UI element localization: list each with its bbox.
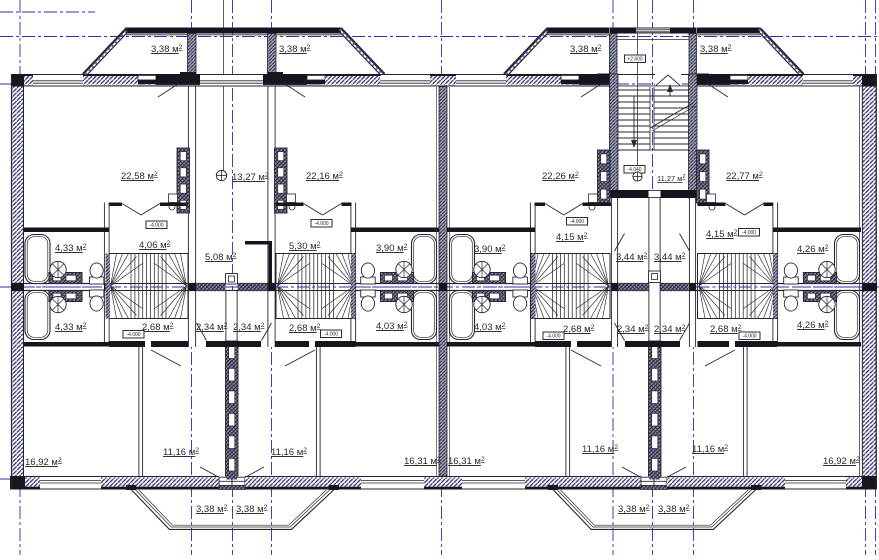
svg-text:2,68 м2: 2,68 м2 bbox=[563, 324, 595, 335]
svg-text:-4.000: -4.000 bbox=[742, 230, 756, 236]
svg-text:3,38 м2: 3,38 м2 bbox=[151, 44, 183, 55]
svg-text:3,90 м2: 3,90 м2 bbox=[474, 244, 506, 255]
svg-text:13,27 м2: 13,27 м2 bbox=[232, 172, 269, 183]
svg-text:-4.000: -4.000 bbox=[126, 332, 140, 338]
svg-text:4,26 м2: 4,26 м2 bbox=[797, 320, 829, 331]
svg-text:11,16 м2: 11,16 м2 bbox=[692, 444, 728, 455]
svg-text:3,38 м2: 3,38 м2 bbox=[618, 504, 650, 515]
svg-text:4,15 м2: 4,15 м2 bbox=[556, 232, 588, 243]
svg-text:16,92 м2: 16,92 м2 bbox=[823, 456, 860, 467]
svg-text:3,90 м2: 3,90 м2 bbox=[376, 243, 408, 254]
svg-text:4,33 м2: 4,33 м2 bbox=[55, 243, 87, 254]
svg-text:3,38 м2: 3,38 м2 bbox=[279, 44, 311, 55]
svg-text:4,26 м2: 4,26 м2 bbox=[797, 244, 829, 255]
svg-text:3,38 м2: 3,38 м2 bbox=[658, 504, 690, 515]
svg-text:4,33 м2: 4,33 м2 bbox=[55, 322, 87, 333]
svg-text:22,16 м2: 22,16 м2 bbox=[306, 171, 343, 182]
svg-text:5,08 м2: 5,08 м2 bbox=[205, 252, 237, 263]
svg-text:2,68 м2: 2,68 м2 bbox=[289, 323, 321, 334]
svg-text:-4.000: -4.000 bbox=[324, 332, 338, 338]
svg-text:4,03 м2: 4,03 м2 bbox=[474, 322, 506, 333]
svg-text:4,03 м2: 4,03 м2 bbox=[376, 321, 408, 332]
svg-text:16,31 м2: 16,31 м2 bbox=[448, 456, 485, 467]
svg-text:4,06 м2: 4,06 м2 bbox=[139, 240, 171, 251]
svg-text:3,38 м2: 3,38 м2 bbox=[570, 44, 602, 55]
svg-text:3,44 м2: 3,44 м2 bbox=[616, 252, 648, 263]
svg-text:2,34 м2: 2,34 м2 bbox=[196, 322, 228, 333]
svg-text:2,34 м2: 2,34 м2 bbox=[654, 324, 686, 335]
svg-text:5,30 м2: 5,30 м2 bbox=[289, 241, 321, 252]
svg-text:-4.000: -4.000 bbox=[546, 334, 560, 340]
svg-text:-4.000: -4.000 bbox=[314, 221, 328, 227]
svg-text:-4.000: -4.000 bbox=[742, 334, 756, 340]
svg-text:3,38 м2: 3,38 м2 bbox=[196, 504, 228, 515]
svg-text:22,58 м2: 22,58 м2 bbox=[121, 171, 158, 182]
svg-text:3,44 м2: 3,44 м2 bbox=[654, 252, 686, 263]
svg-text:2,34 м2: 2,34 м2 bbox=[617, 324, 649, 335]
svg-text:16,31 м2: 16,31 м2 bbox=[404, 456, 441, 467]
svg-text:22,77 м2: 22,77 м2 bbox=[726, 171, 763, 182]
svg-text:16,92 м2: 16,92 м2 bbox=[25, 457, 62, 468]
svg-text:3,38 м2: 3,38 м2 bbox=[700, 44, 732, 55]
svg-text:4,15 м2: 4,15 м2 bbox=[706, 229, 738, 240]
svg-text:+2.600: +2.600 bbox=[627, 57, 643, 63]
svg-text:2,68 м2: 2,68 м2 bbox=[710, 324, 742, 335]
svg-text:3,38 м2: 3,38 м2 bbox=[236, 504, 268, 515]
svg-text:22,26 м2: 22,26 м2 bbox=[542, 171, 579, 182]
svg-text:-4.000: -4.000 bbox=[149, 223, 163, 229]
svg-text:11,16 м2: 11,16 м2 bbox=[582, 444, 618, 455]
svg-text:11,16 м2: 11,16 м2 bbox=[271, 447, 307, 458]
svg-text:-4.000: -4.000 bbox=[570, 219, 584, 225]
svg-text:2,34 м2: 2,34 м2 bbox=[233, 322, 265, 333]
svg-text:11,16 м2: 11,16 м2 bbox=[163, 447, 199, 458]
svg-text:11,27 м2: 11,27 м2 bbox=[657, 174, 685, 183]
svg-text:2,68 м2: 2,68 м2 bbox=[142, 322, 174, 333]
